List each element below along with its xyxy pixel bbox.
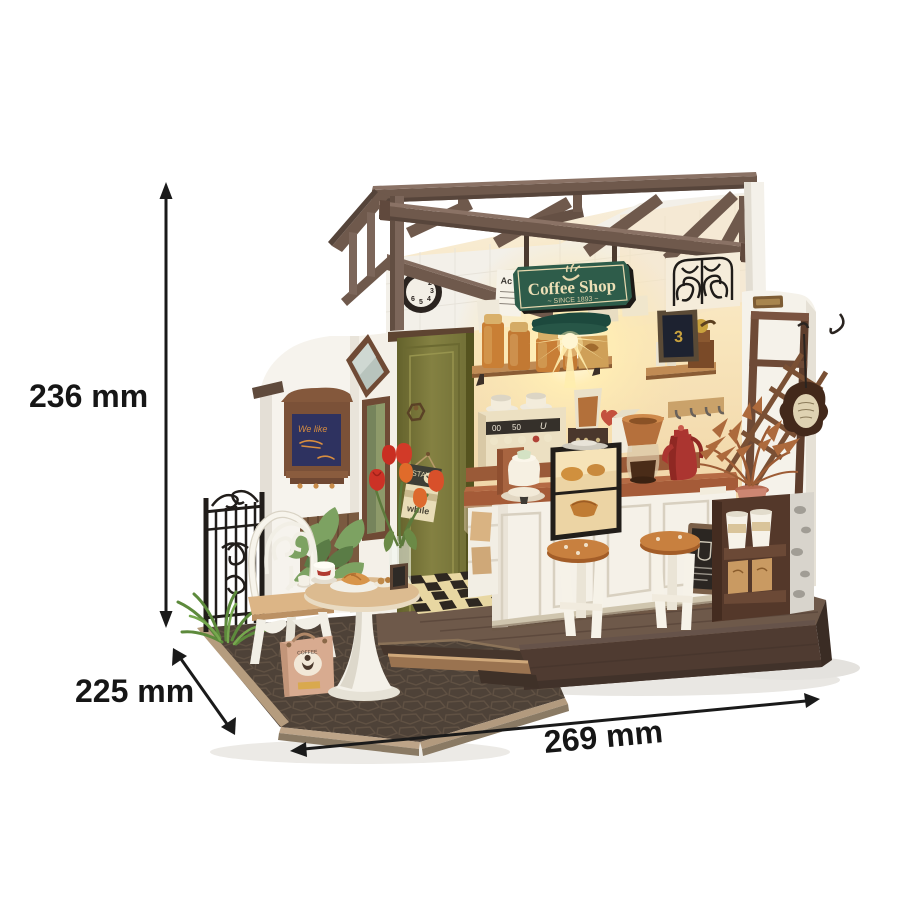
svg-text:3: 3 [674,329,684,346]
svg-text:225 mm: 225 mm [75,673,194,709]
svg-text:3: 3 [430,288,434,295]
svg-text:U: U [540,421,547,431]
svg-text:50: 50 [512,423,521,432]
svg-text:236 mm: 236 mm [29,378,148,414]
svg-text:COFFEE: COFFEE [297,649,318,656]
svg-text:We like: We like [298,424,327,434]
svg-text:5: 5 [419,299,423,306]
svg-text:Ac: Ac [500,276,512,287]
svg-text:4: 4 [427,296,431,303]
svg-text:00: 00 [492,424,501,433]
svg-text:6: 6 [411,296,415,303]
